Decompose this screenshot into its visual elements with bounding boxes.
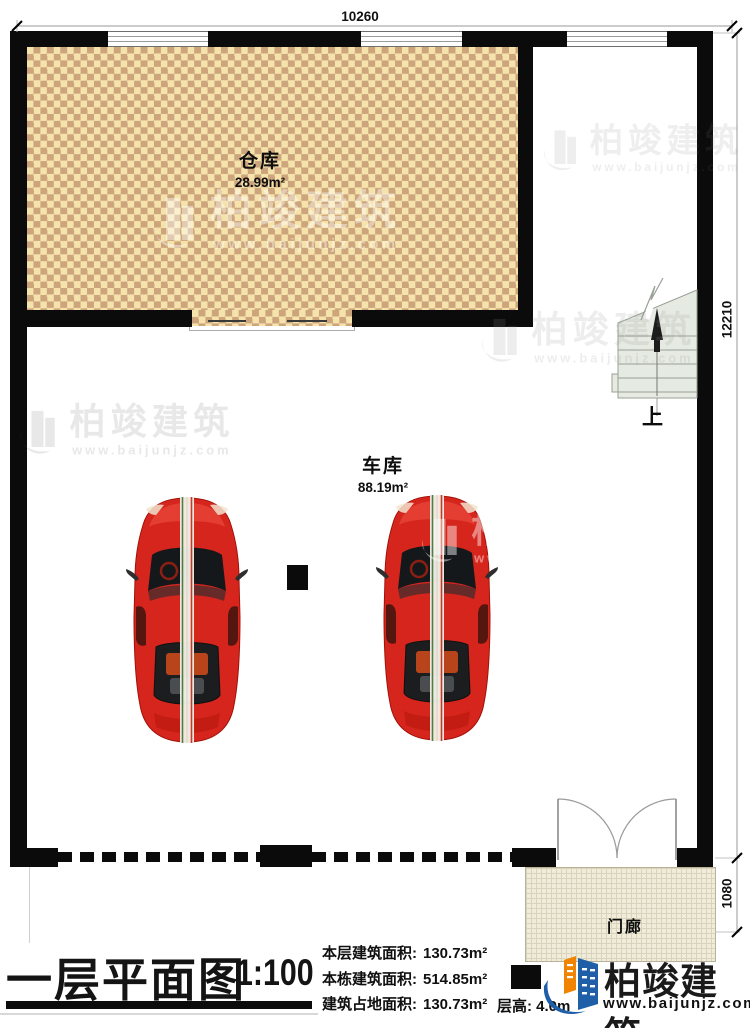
dimension-right-value: 12210	[720, 290, 735, 350]
room-label-warehouse: 仓库 28.99m²	[200, 146, 320, 190]
sliding-door-mark	[287, 320, 327, 322]
stat-row: 本栋建筑面积:514.85m²	[322, 967, 487, 993]
garage-door-dashed-1	[58, 852, 260, 862]
car-right	[376, 493, 498, 743]
bottom-wall-pillar	[260, 845, 312, 867]
stat-label: 本层建筑面积:	[322, 945, 417, 962]
garage-column	[287, 565, 308, 590]
stat-row: 本层建筑面积:130.73m²	[322, 941, 487, 967]
stat-label: 建筑占地面积:	[322, 996, 417, 1013]
title-underline-light	[0, 1013, 318, 1015]
stairs-up-label: 上	[642, 401, 663, 431]
area-stats: 本层建筑面积:130.73m² 本栋建筑面积:514.85m² 建筑占地面积:1…	[322, 941, 487, 1018]
warehouse-right-wall	[518, 47, 533, 327]
watermark-logo-icon	[540, 127, 582, 172]
warehouse-bottom-wall-left	[10, 310, 192, 327]
dimension-porch-value: 1080	[720, 869, 735, 919]
warehouse-door-floor	[192, 310, 352, 326]
warehouse-bottom-wall-right	[352, 310, 533, 327]
warehouse-door-outline	[189, 325, 355, 331]
legend-square	[511, 965, 541, 989]
wall-left	[10, 31, 27, 867]
bottom-wall-stub-left	[27, 848, 58, 867]
stat-value: 130.73m²	[423, 945, 487, 962]
car-left	[126, 495, 248, 745]
room-label-garage: 车库 88.19m²	[323, 451, 443, 495]
plan-scale: 1:100	[236, 952, 314, 994]
sliding-door-mark	[208, 320, 246, 322]
garage-door-dashed-2	[312, 852, 512, 862]
title-underline	[6, 1001, 312, 1009]
watermark: 柏竣建筑www.baijunjz.com	[16, 404, 234, 458]
stat-value: 514.85m²	[423, 971, 487, 988]
room-label-porch: 门廊	[585, 913, 665, 937]
company-logo-text: 柏竣建筑	[604, 951, 750, 1028]
double-door	[550, 778, 690, 870]
stat-value: 130.73m²	[423, 996, 487, 1013]
dimension-top-value: 10260	[328, 9, 392, 24]
company-logo-url: www.baijunjz.com	[603, 995, 750, 1012]
extension-line	[29, 867, 30, 943]
stat-row: 建筑占地面积:130.73m²	[322, 992, 487, 1018]
floor-plan-page: 上 10260 12210 1080 仓库 28.99m² 车库 88.19m²	[0, 0, 750, 1028]
company-logo-icon	[538, 950, 610, 1022]
stat-label: 本栋建筑面积:	[322, 971, 417, 988]
dimension-right	[710, 18, 750, 958]
